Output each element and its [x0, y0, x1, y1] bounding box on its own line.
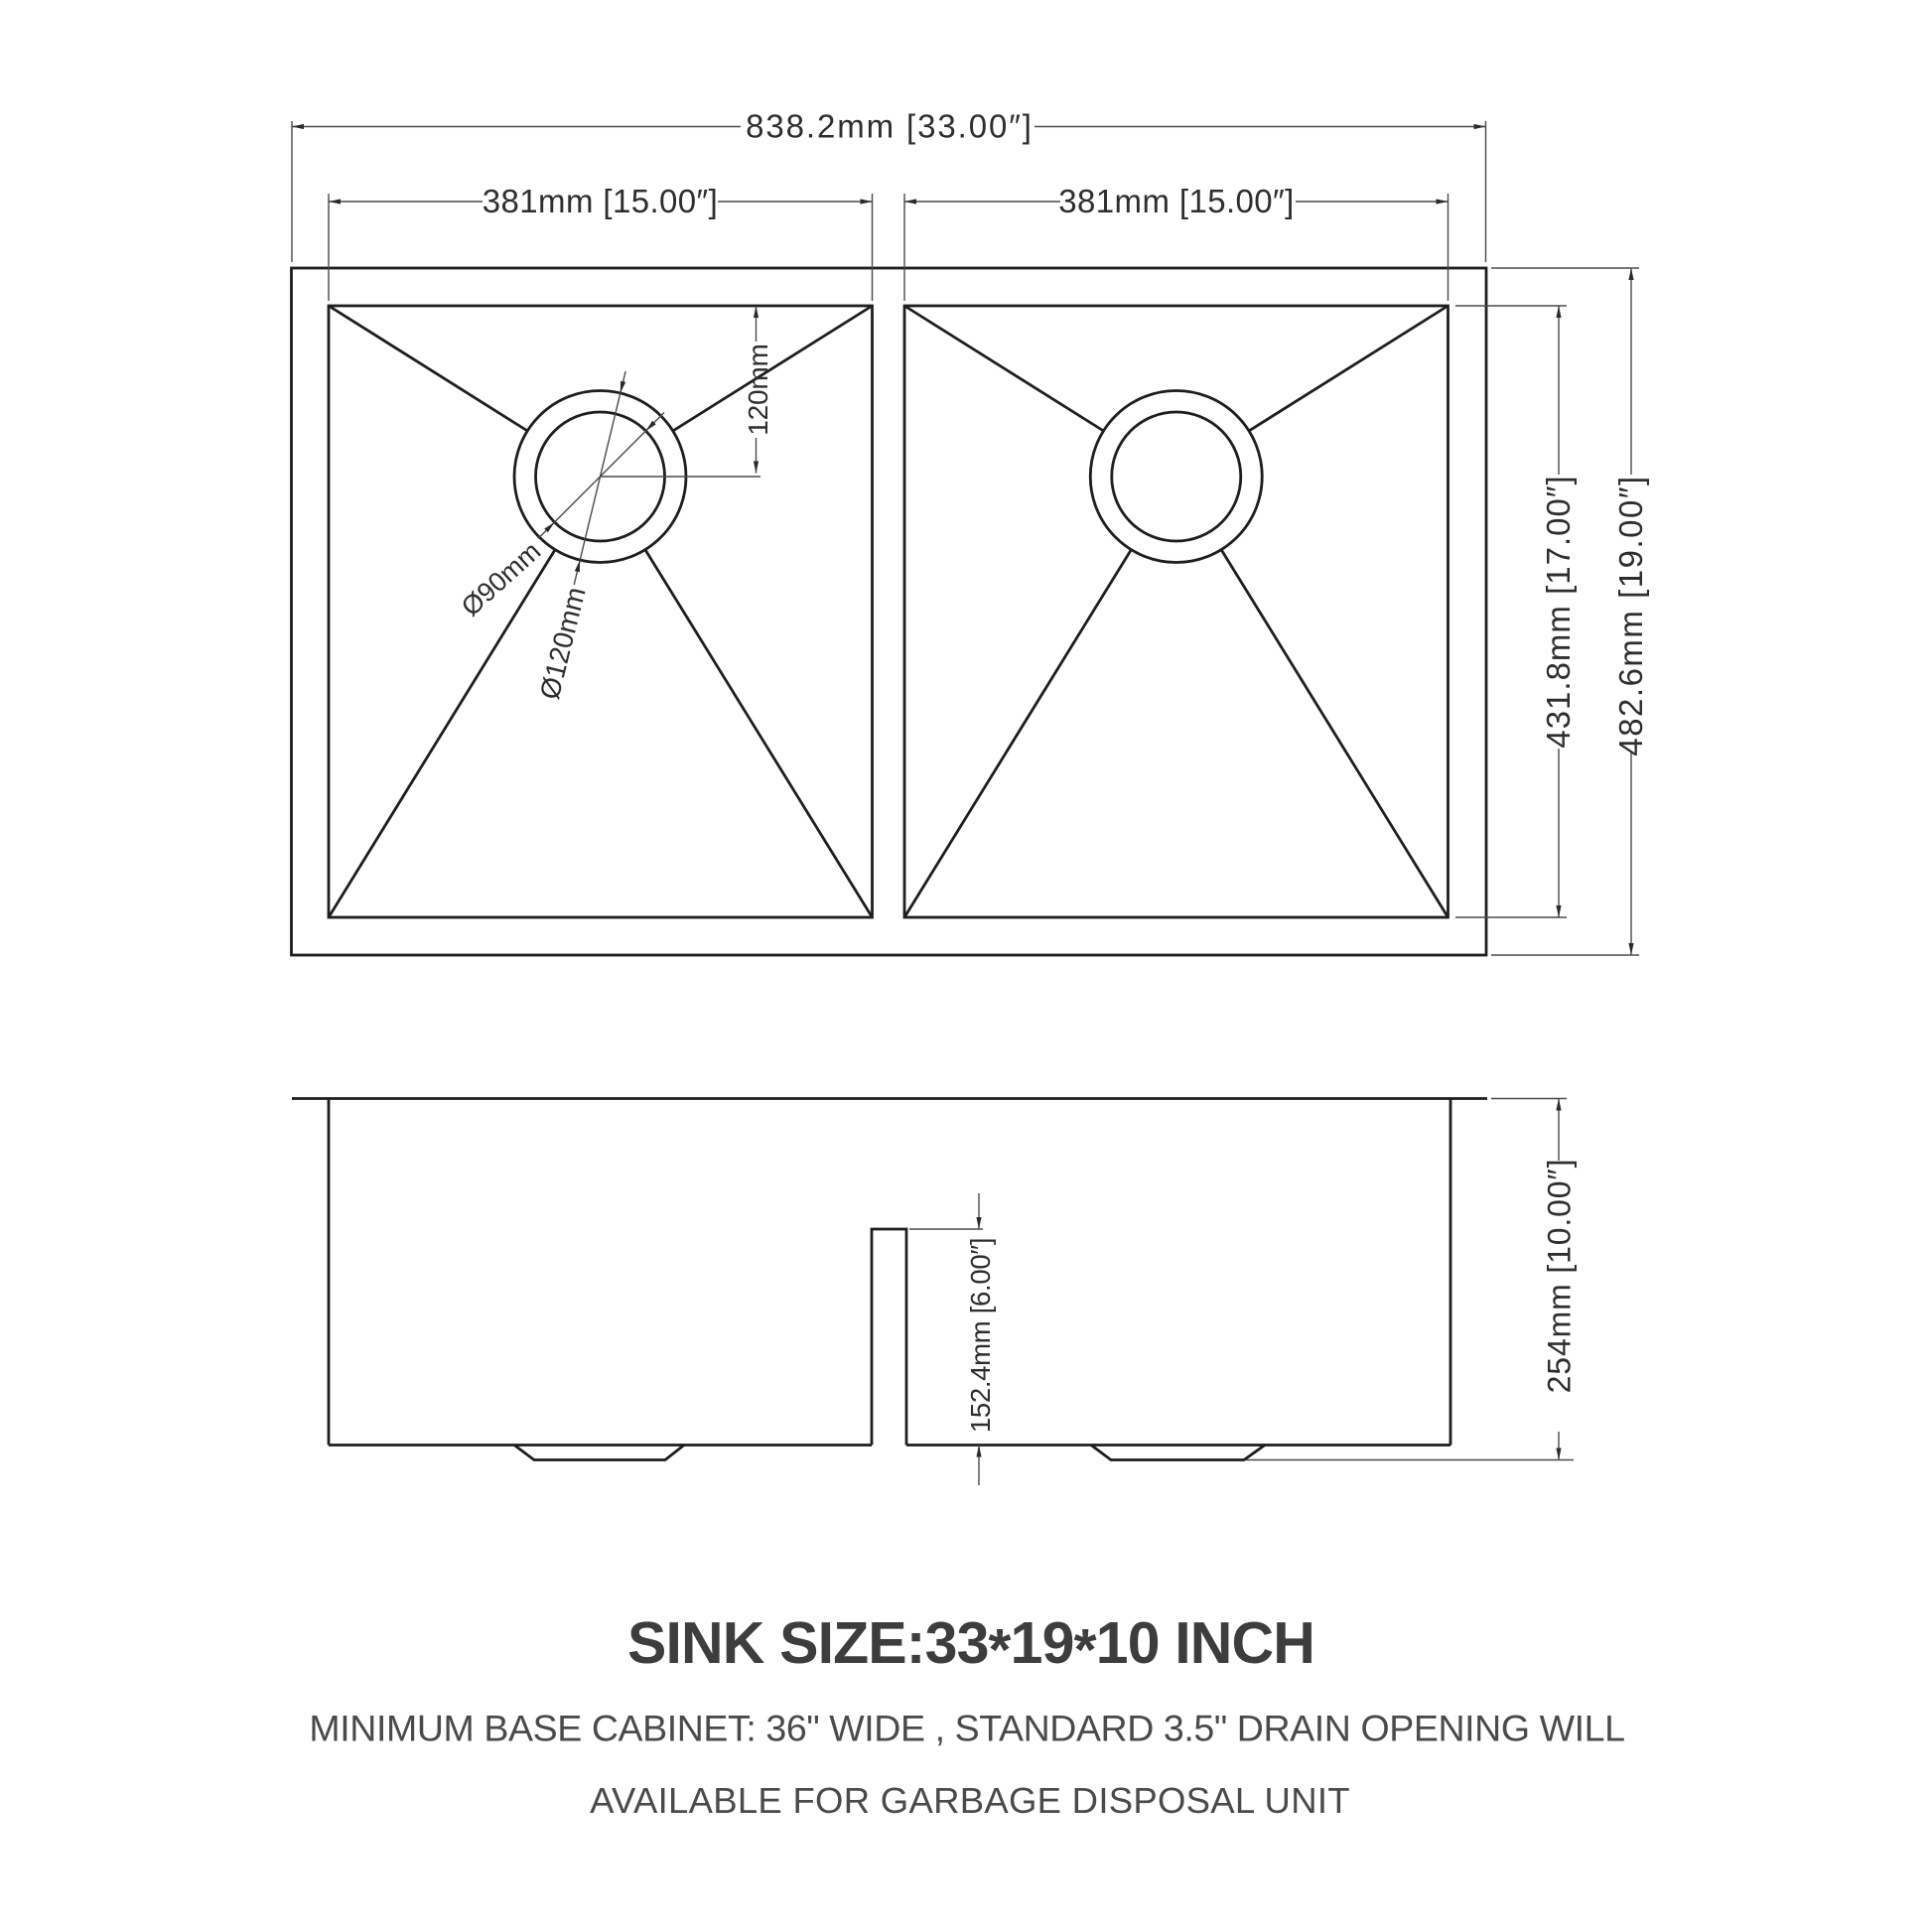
svg-text:381mm [15.00″]: 381mm [15.00″] — [1058, 183, 1294, 219]
svg-text:120mm: 120mm — [743, 344, 773, 435]
svg-text:SINK SIZE:33*19*10 INCH: SINK SIZE:33*19*10 INCH — [627, 1610, 1314, 1683]
svg-text:254mm [10.00″]: 254mm [10.00″] — [1542, 1159, 1578, 1394]
svg-text:431.8mm [17.00″]: 431.8mm [17.00″] — [1540, 475, 1577, 748]
svg-text:Ø120mm: Ø120mm — [534, 584, 592, 702]
svg-text:381mm [15.00″]: 381mm [15.00″] — [483, 183, 718, 219]
svg-text:838.2mm [33.00″]: 838.2mm [33.00″] — [746, 108, 1034, 145]
svg-text:AVAILABLE FOR GARBAGE DISPOSAL: AVAILABLE FOR GARBAGE DISPOSAL UNIT — [590, 1780, 1350, 1821]
svg-text:482.6mm [19.00″]: 482.6mm [19.00″] — [1612, 475, 1649, 756]
svg-text:Ø90mm: Ø90mm — [456, 536, 546, 622]
svg-text:152.4mm [6.00″]: 152.4mm [6.00″] — [965, 1238, 996, 1433]
svg-text:MINIMUM BASE CABINET: 36" WIDE: MINIMUM BASE CABINET: 36" WIDE , STANDAR… — [309, 1708, 1624, 1749]
